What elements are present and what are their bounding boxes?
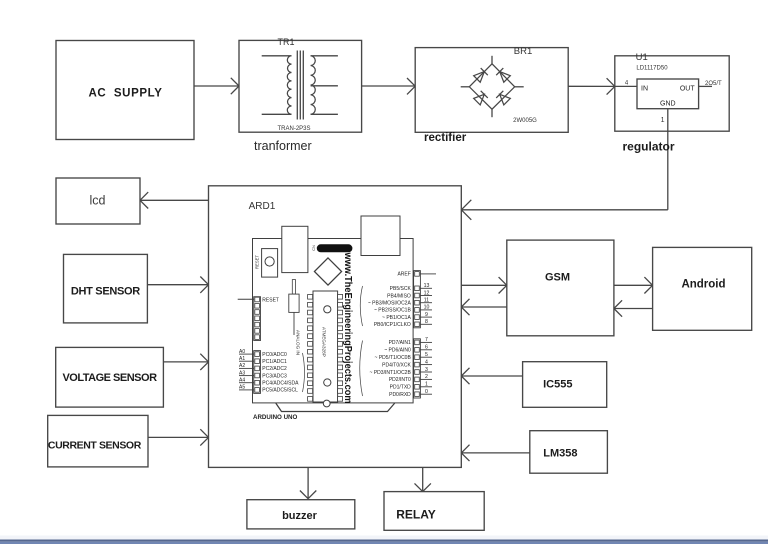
svg-text:A4: A4 (239, 378, 245, 384)
svg-text:2: 2 (425, 374, 428, 380)
svg-text:PD2/INT0: PD2/INT0 (389, 377, 411, 383)
svg-text:9: 9 (425, 312, 428, 318)
svg-text:PC5/ADC5/SCL: PC5/ADC5/SCL (262, 388, 298, 394)
svg-text:ARDUINO UNO: ARDUINO UNO (253, 414, 298, 421)
svg-text:0: 0 (425, 389, 428, 395)
svg-text:lcd: lcd (90, 194, 106, 208)
svg-text:10: 10 (424, 305, 430, 311)
svg-text:A1: A1 (239, 356, 245, 362)
svg-text:PD1/TXD: PD1/TXD (390, 385, 412, 391)
svg-text:GSM: GSM (545, 272, 570, 284)
svg-text:LD1117D50: LD1117D50 (636, 66, 668, 72)
svg-text:2O5/T: 2O5/T (705, 81, 722, 87)
svg-text:TR1: TR1 (277, 37, 294, 47)
svg-text:PC4/ADC4/SDA: PC4/ADC4/SDA (262, 381, 299, 387)
svg-text:ATMEGA328P: ATMEGA328P (322, 327, 327, 357)
svg-text:PD7/AIN1: PD7/AIN1 (389, 340, 411, 346)
svg-text:PB5/SCK: PB5/SCK (390, 286, 412, 292)
svg-text:PC2/ADC2: PC2/ADC2 (262, 366, 287, 372)
svg-text:A5: A5 (239, 385, 245, 391)
svg-text:RESET: RESET (255, 255, 260, 269)
svg-text:RESET: RESET (262, 298, 279, 304)
svg-text:1: 1 (425, 382, 428, 388)
svg-text:2W005G: 2W005G (513, 118, 537, 124)
svg-text:BR1: BR1 (514, 46, 532, 57)
svg-text:7: 7 (425, 337, 428, 343)
svg-text:~ PB2/SS/OC1B: ~ PB2/SS/OC1B (374, 308, 411, 314)
svg-text:OUT: OUT (680, 86, 696, 93)
svg-text:buzzer: buzzer (282, 510, 318, 522)
svg-text:ARD1: ARD1 (249, 201, 276, 212)
svg-text:4: 4 (425, 359, 428, 365)
svg-text:IN: IN (641, 86, 648, 93)
svg-text:Android: Android (681, 279, 725, 291)
svg-text:12: 12 (424, 290, 430, 296)
svg-text:AC SUPPLY: AC SUPPLY (89, 88, 163, 100)
svg-text:GND: GND (660, 101, 676, 108)
svg-text:TRAN-2P3S: TRAN-2P3S (277, 126, 310, 132)
svg-text:U1: U1 (636, 52, 648, 63)
svg-text:RELAY: RELAY (396, 508, 436, 522)
svg-text:A3: A3 (239, 370, 245, 376)
svg-text:PC0/ADC0: PC0/ADC0 (262, 352, 287, 358)
svg-text:PD0/RXD: PD0/RXD (389, 392, 411, 398)
svg-text:1: 1 (661, 117, 665, 124)
svg-text:~ PD6/AIN0: ~ PD6/AIN0 (384, 348, 411, 354)
svg-text:ANALOG IN: ANALOG IN (296, 330, 301, 355)
svg-text:3: 3 (425, 367, 428, 373)
svg-text:PB4/MISO: PB4/MISO (387, 293, 411, 299)
svg-text:CN: CN (311, 245, 316, 251)
svg-text:5: 5 (425, 352, 428, 358)
svg-text:DHT SENSOR: DHT SENSOR (71, 286, 140, 298)
svg-text:8: 8 (425, 319, 428, 325)
svg-text:rectifier: rectifier (424, 132, 467, 144)
svg-text:11: 11 (424, 298, 429, 304)
svg-text:regulator: regulator (623, 140, 675, 154)
svg-text:PD4/T0/XCK: PD4/T0/XCK (382, 362, 411, 368)
svg-text:VOLTAGE SENSOR: VOLTAGE SENSOR (62, 372, 157, 384)
svg-text:A0: A0 (239, 349, 245, 355)
svg-text:CURRENT SENSOR: CURRENT SENSOR (48, 440, 142, 452)
svg-text:LM358: LM358 (543, 448, 577, 460)
svg-text:IC555: IC555 (543, 379, 572, 391)
svg-text:PC1/ADC1: PC1/ADC1 (262, 359, 287, 365)
svg-text:~ PD5/T1/OC0B: ~ PD5/T1/OC0B (375, 355, 412, 361)
svg-text:6: 6 (425, 345, 428, 351)
svg-text:~ PD3/INT1/OC2B: ~ PD3/INT1/OC2B (370, 370, 412, 376)
svg-text:PC3/ADC3: PC3/ADC3 (262, 373, 287, 379)
svg-text:AREF: AREF (397, 272, 410, 278)
svg-text:~ PB1/OC1A: ~ PB1/OC1A (382, 315, 411, 321)
svg-text:tranformer: tranformer (254, 139, 312, 153)
svg-text:A2: A2 (239, 363, 245, 369)
svg-text:PB0/ICP1/CLKO: PB0/ICP1/CLKO (374, 322, 411, 328)
svg-text:www.TheEngineeringProjects.com: www.TheEngineeringProjects.com (342, 252, 354, 404)
svg-text:~ PB3/MOSI/OC2A: ~ PB3/MOSI/OC2A (368, 301, 412, 307)
svg-text:13: 13 (424, 283, 430, 289)
